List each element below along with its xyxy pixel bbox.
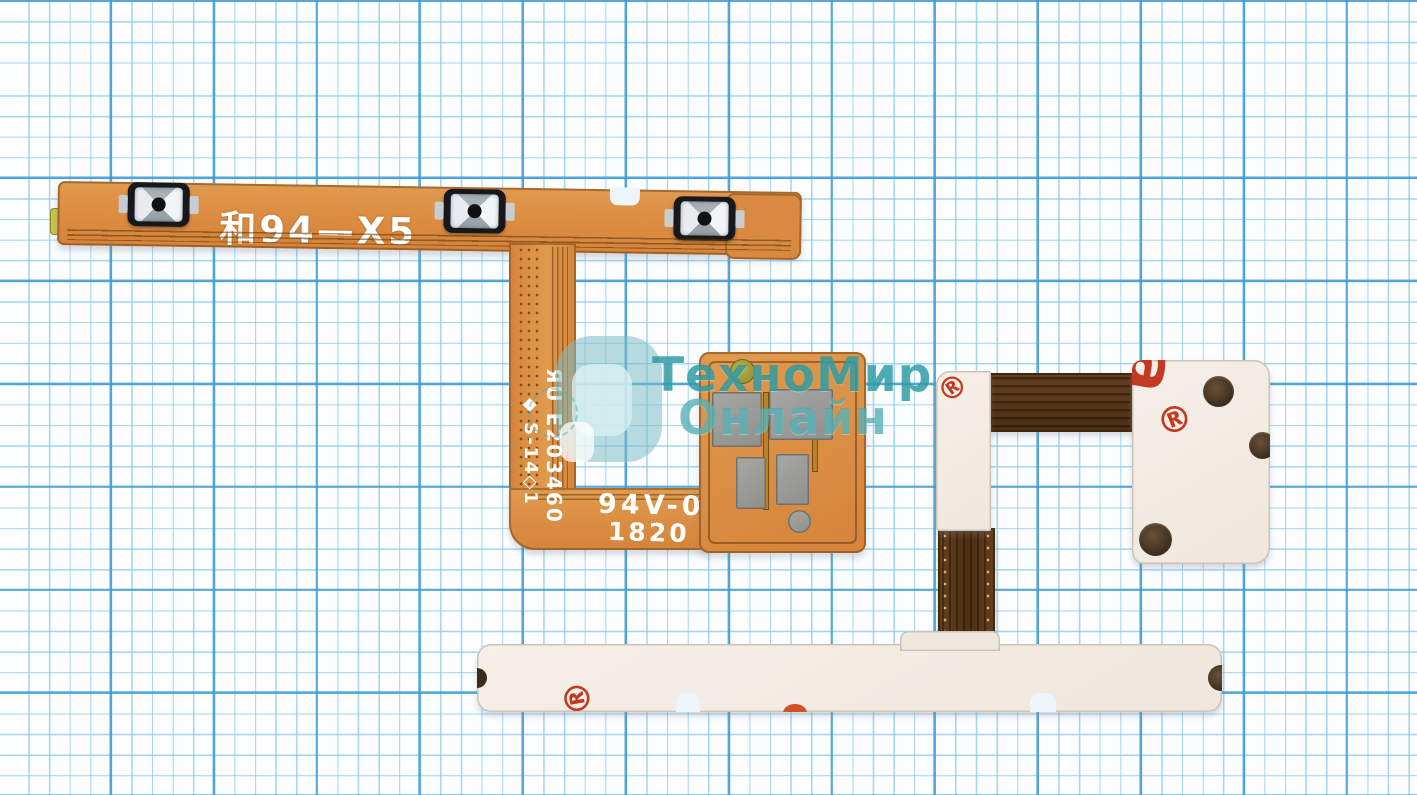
product-photo: 和94—X5 ЯU E203460 ◆ S-14◇1 94V-0 1820 ® …: [0, 0, 1417, 795]
partial-red-mark: [783, 704, 807, 712]
watermark-text-line2: Онлайн: [678, 391, 888, 446]
button-switch-1: [127, 182, 190, 227]
partial-red-mark: а: [1132, 360, 1190, 399]
switch-contact-tab: [119, 195, 128, 213]
strip-notch: [676, 693, 700, 712]
registered-mark: ®: [936, 371, 975, 411]
switch-metal-dome: [134, 187, 182, 222]
switch-contact-tab: [505, 203, 514, 221]
flex-model-text: 和94—X5: [219, 198, 418, 255]
flex-date-code: 1820: [608, 517, 690, 548]
round-solder-pad: [788, 510, 811, 533]
backing-plate-right: а ®: [1132, 360, 1270, 564]
solder-pad: [736, 457, 766, 509]
strip-notch: [1030, 693, 1056, 712]
watermark-circuit-doodle: [528, 388, 578, 438]
button-switch-2: [443, 189, 506, 234]
flex-ribbon-top: [988, 373, 1134, 432]
switch-contact-tab: [735, 210, 744, 228]
screw-hole: [1203, 376, 1234, 407]
flex-strip-notch: [610, 187, 640, 205]
switch-metal-dome: [450, 194, 498, 229]
registered-mark: ®: [556, 677, 601, 712]
switch-center-dot: [697, 211, 711, 225]
strip-end-hole: [1208, 665, 1222, 691]
switch-contact-tab: [664, 209, 673, 227]
switch-contact-tab: [434, 202, 443, 220]
switch-contact-tab: [190, 196, 199, 214]
solder-pad: [776, 454, 809, 505]
registered-mark: ®: [1151, 395, 1200, 447]
switch-metal-dome: [680, 201, 728, 236]
switch-center-dot: [152, 197, 166, 211]
screw-hole: [1139, 523, 1172, 556]
strip-end-hole: [477, 668, 487, 688]
switch-center-dot: [467, 204, 481, 218]
flex-cable-top-strip: 和94—X5: [57, 181, 802, 256]
strip-surface: ®: [477, 644, 1222, 712]
button-switch-3: [673, 196, 736, 241]
screw-hole: [1249, 432, 1270, 459]
backing-plate-arm: ®: [936, 371, 991, 531]
backing-strip-bottom: ®: [477, 644, 1222, 712]
